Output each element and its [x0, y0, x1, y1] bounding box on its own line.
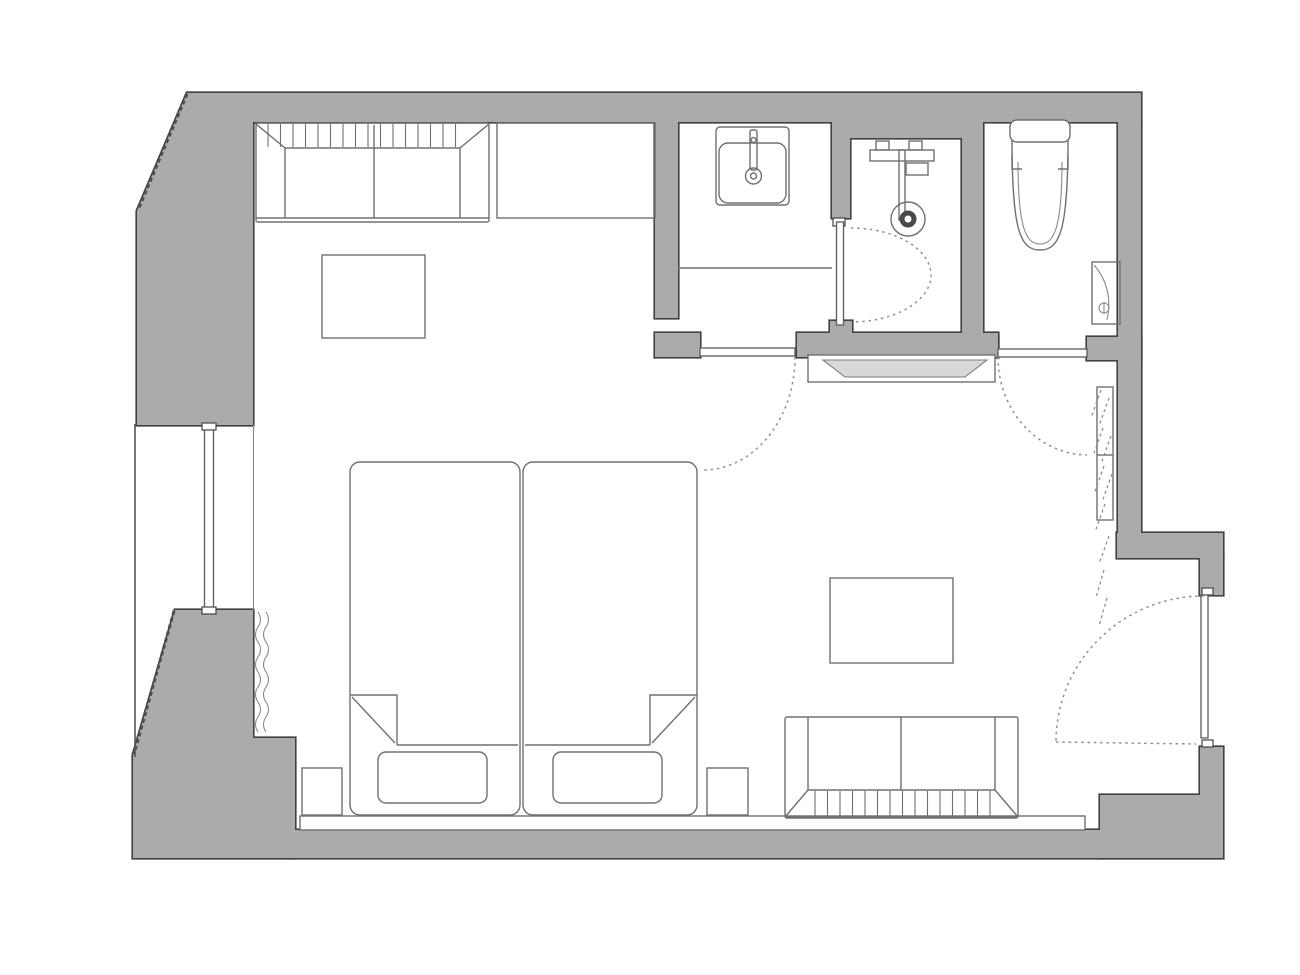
bedroom-hall-door: [700, 348, 795, 470]
side-table: [322, 255, 425, 338]
toilet-bowl: [1012, 140, 1068, 250]
toilet-tank: [1010, 120, 1070, 142]
living-sofa-back-hatch: [815, 791, 990, 816]
coffee-table: [830, 578, 953, 663]
mirror-reflection-marks: [1091, 390, 1112, 626]
faucet-knob: [751, 138, 756, 143]
bed-1-blanket-fold: [350, 695, 518, 745]
bedroom-sofa: [256, 123, 489, 222]
wall-mirror: [1091, 387, 1113, 626]
entrance-door-stop-bottom: [1202, 740, 1213, 747]
luggage-bench-top: [823, 360, 987, 377]
entrance-door-swing: [1056, 596, 1204, 742]
window-glazing: [205, 427, 214, 610]
shower-mixer-bar: [870, 150, 934, 161]
shower-drain-center: [902, 213, 914, 225]
living-sofa: [785, 717, 1018, 818]
bed-2-pillow: [553, 752, 662, 803]
floor-plan-canvas: [0, 0, 1300, 975]
toilet-door: [998, 349, 1087, 455]
window-left: [202, 423, 216, 614]
entrance-door: [1056, 588, 1213, 747]
twin-bed-1: [350, 462, 520, 815]
vanity-room-fixtures: [678, 127, 832, 268]
bed-2-blanket-fold: [525, 695, 697, 745]
shower-handle-left: [876, 141, 889, 150]
floor-plan-drawing: [0, 0, 1300, 975]
twin-bed-2: [523, 462, 697, 815]
shower-spout: [906, 163, 928, 175]
entrance-door-swing-chord: [1056, 742, 1196, 744]
nightstand-left: [302, 768, 342, 815]
sofa-back-hatch: [268, 124, 456, 147]
luggage-bench: [808, 355, 995, 382]
window-cap-top: [202, 423, 216, 430]
toilet-fixtures: [1010, 120, 1120, 324]
window-cap-bottom: [202, 607, 216, 614]
shower-handle-right: [909, 141, 922, 150]
wash-basin-outer: [716, 127, 789, 205]
entrance-door-leaf: [1201, 595, 1208, 738]
wall-counter: [497, 123, 655, 218]
shower-fixtures: [870, 141, 934, 236]
shower-door-swing: [851, 228, 931, 322]
bedroom-hall-door-leaf: [700, 348, 795, 356]
curtain: [256, 612, 269, 732]
toilet-door-swing: [998, 357, 1087, 455]
toilet-paper-holder: [1092, 262, 1120, 324]
bed-1-pillow: [378, 752, 487, 803]
shower-door-leaf: [837, 222, 844, 325]
nightstand-right: [707, 768, 748, 815]
faucet-stem: [750, 130, 757, 170]
entrance-door-stop-top: [1202, 588, 1213, 595]
toilet-door-leaf: [998, 349, 1087, 357]
bedroom-hall-door-swing: [703, 357, 795, 470]
